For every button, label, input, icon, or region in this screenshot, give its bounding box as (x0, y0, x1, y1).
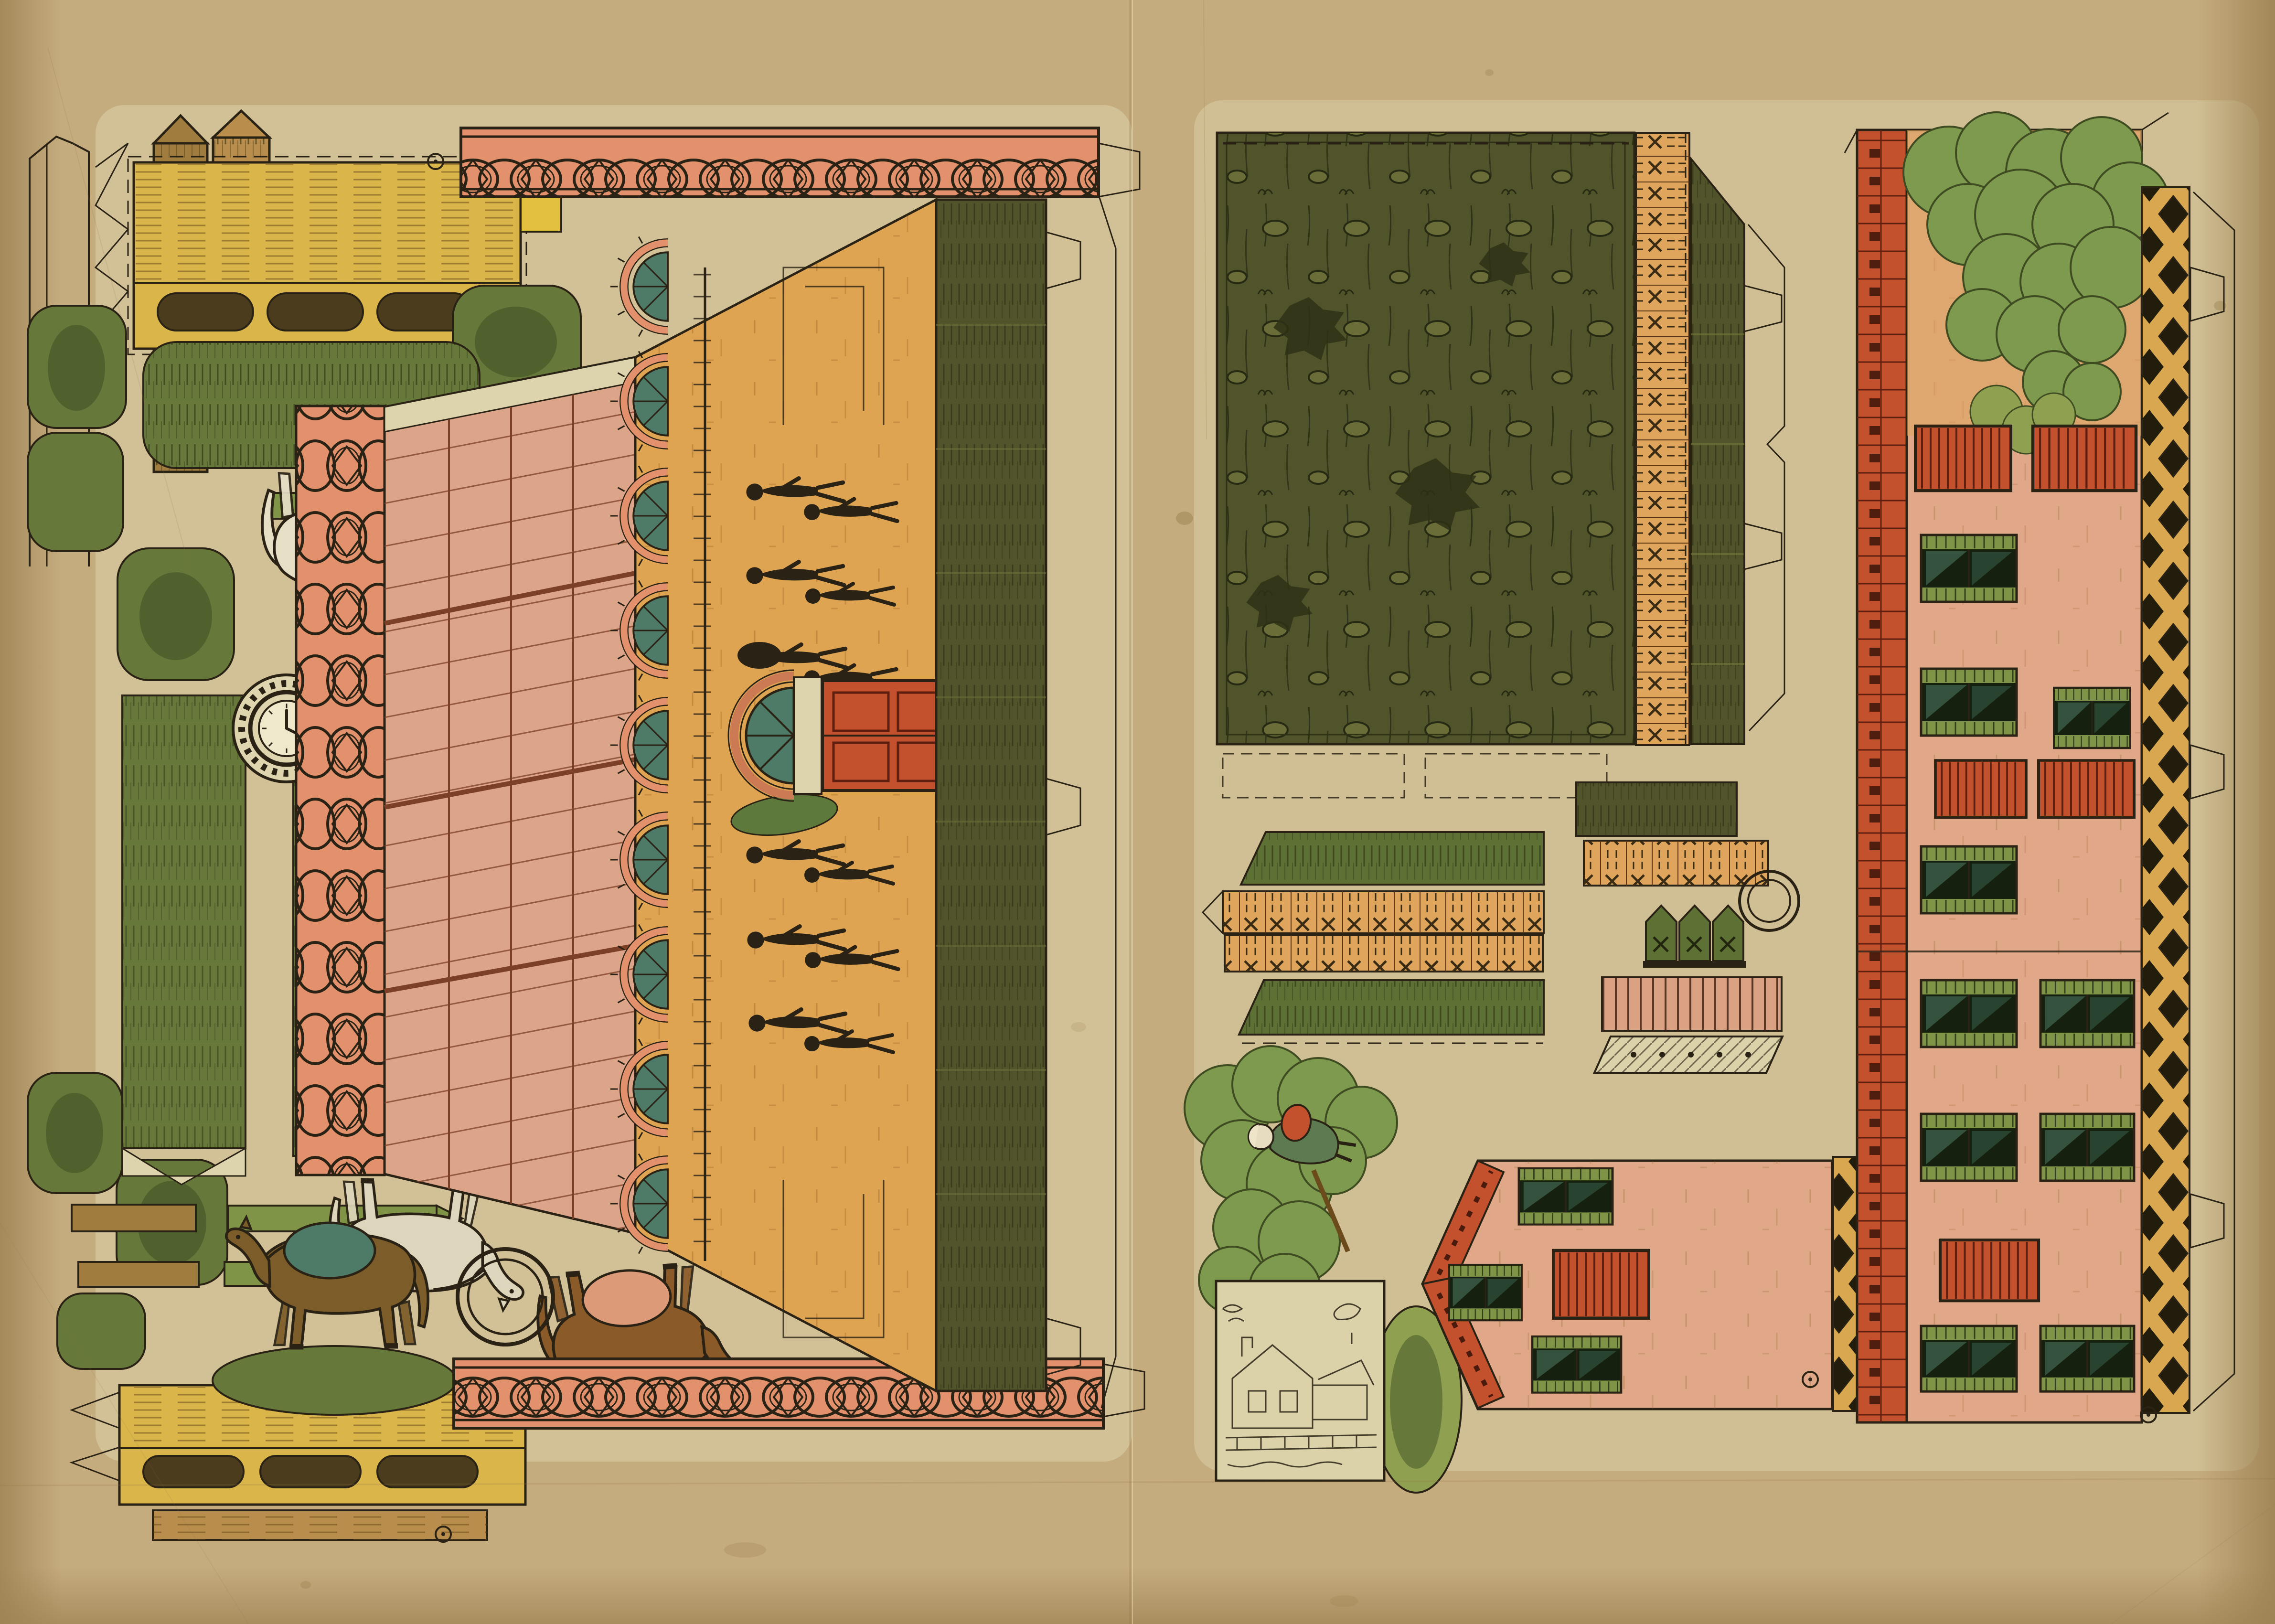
red-slat-door (1915, 426, 2011, 491)
brick-course-ladder (694, 267, 711, 1261)
assembly-vignette (1216, 1281, 1384, 1481)
picket-gate-piece (1643, 906, 1746, 968)
saddle-blanket (284, 1223, 375, 1278)
dark-oval-mark (737, 642, 781, 669)
meadow-ground-panel (1217, 133, 1634, 744)
shuttered-window (1921, 669, 2017, 736)
red-slat-door (2039, 760, 2134, 818)
x-pattern-fence-band-vertical (1636, 133, 1689, 745)
shuttered-window (2040, 1114, 2134, 1181)
hedge-panel-square (1576, 782, 1737, 836)
red-slat-door (1940, 1240, 2039, 1301)
hedge-band (1239, 980, 1544, 1043)
diamond-frieze-border (2142, 187, 2190, 1413)
x-pattern-fence-band-short (1584, 841, 1768, 886)
shuttered-window (1921, 1326, 2017, 1391)
shuttered-window (1921, 980, 2017, 1047)
hedge-trough-piece (122, 695, 246, 1185)
shuttered-window (1921, 846, 2017, 913)
x-pattern-fence-band (1203, 891, 1544, 933)
dark-roof-slope-band (936, 200, 1046, 1391)
red-slat-door (1935, 760, 2026, 818)
x-pattern-fence-band (1225, 935, 1543, 972)
shuttered-window (1921, 1114, 2017, 1181)
shuttered-window (2040, 980, 2134, 1047)
shuttered-window (2040, 1326, 2134, 1391)
red-slat-door (2033, 426, 2136, 491)
hedge-band-vertical (1691, 159, 1744, 744)
shuttered-window (1449, 1265, 1522, 1320)
farm-facade-wall (1845, 112, 2234, 1422)
cutout-sheet-artwork (0, 0, 2275, 1624)
knotwork-border-strip (296, 406, 385, 1175)
shuttered-window (2054, 688, 2130, 748)
hatched-base-strip (1594, 1036, 1783, 1073)
red-slat-door (1553, 1250, 1649, 1318)
shuttered-window (1532, 1336, 1621, 1393)
pink-slat-roof-piece (1602, 977, 1782, 1031)
grass-mound (213, 1346, 456, 1415)
scanned-sheet (0, 0, 2275, 1624)
door-post (794, 677, 822, 794)
pink-plank-roof-panel (385, 357, 635, 1233)
shuttered-window (1519, 1168, 1613, 1225)
gable-house-wall (1422, 1157, 1905, 1411)
roof-ridge-crest-top (461, 128, 1140, 197)
shuttered-window (1921, 535, 2017, 602)
hedge-band (1241, 832, 1544, 885)
